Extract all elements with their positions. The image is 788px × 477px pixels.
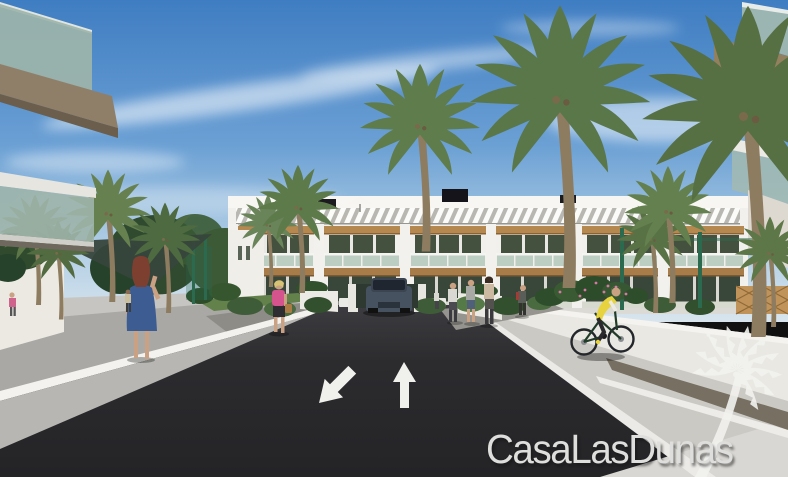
render-image: CasaLasDunas (0, 0, 788, 477)
scene-canvas (0, 0, 788, 477)
watermark-brand-text: CasaLasDunas (486, 429, 733, 470)
